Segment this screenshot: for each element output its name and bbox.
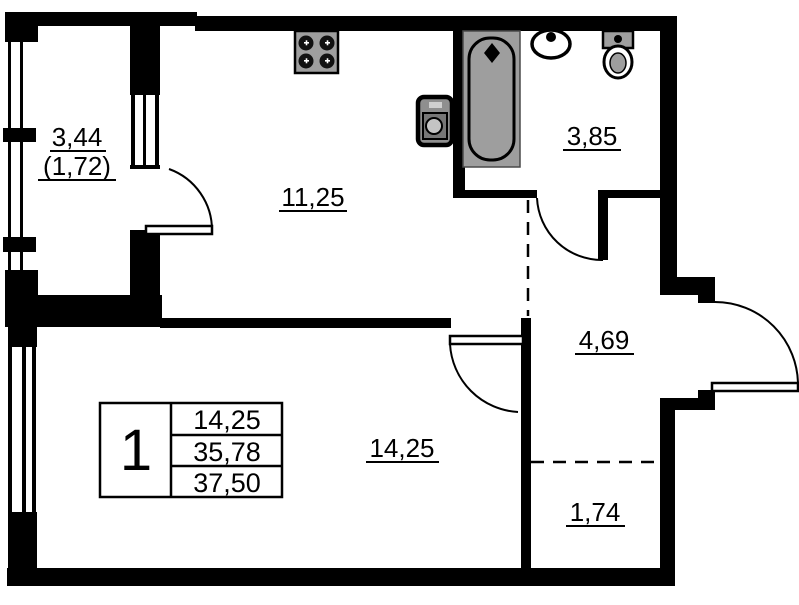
stamp-room-count: 1: [120, 418, 152, 483]
kitchen-balcony-window: [130, 91, 160, 169]
closet-area-label: 1,74: [570, 497, 621, 527]
floor-plan-page: 3,44 (1,72) 11,25 3,85 4,69 14,25 1,74 1…: [0, 0, 799, 600]
stamp-total-area: 37,50: [193, 468, 261, 498]
sink-icon: [532, 29, 570, 58]
bathtub-icon: [463, 31, 520, 167]
floor-plan: 3,44 (1,72) 11,25 3,85 4,69 14,25 1,74 1…: [0, 0, 799, 600]
stamp-living-area: 14,25: [193, 405, 261, 435]
bathroom-area-label: 3,85: [567, 121, 618, 151]
stove-icon: [295, 31, 338, 73]
balcony-secondary-area-label: (1,72): [43, 151, 111, 181]
hall-area-label: 4,69: [579, 325, 630, 355]
apartment-stamp-table: 1 14,25 35,78 37,50: [100, 403, 282, 498]
balcony-area-label: 3,44: [52, 122, 103, 152]
kitchen-area-label: 11,25: [281, 182, 344, 212]
washing-machine-icon: [418, 97, 452, 145]
living-room-area-label: 14,25: [369, 433, 434, 463]
toilet-icon: [603, 31, 633, 78]
stamp-area-without-balcony: 35,78: [193, 437, 261, 467]
